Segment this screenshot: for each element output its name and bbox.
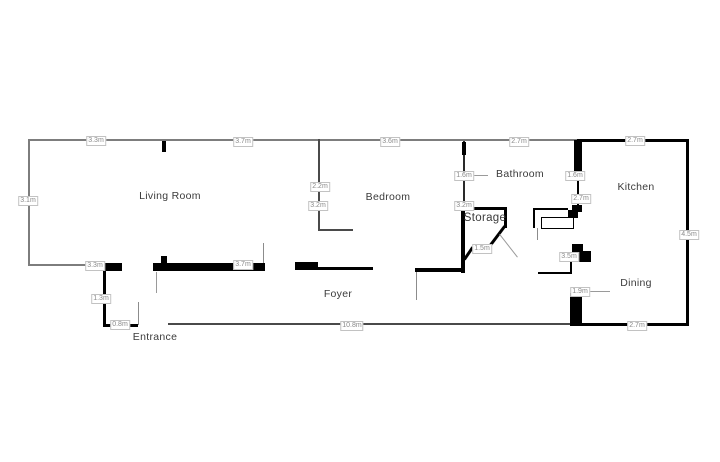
dim-entrance-door: 0.8m xyxy=(110,320,130,330)
dim-left-wall: 3.1m xyxy=(18,196,38,206)
dim-storage-top: 3.2m xyxy=(454,201,474,211)
dim-living-south: 3.7m xyxy=(233,260,253,270)
room-label-living-room: Living Room xyxy=(139,190,201,202)
dim-right-wall: 4.5m xyxy=(679,230,699,240)
room-label-foyer: Foyer xyxy=(324,288,352,300)
room-label-bathroom: Bathroom xyxy=(496,168,544,180)
wall-dining-divider xyxy=(570,293,582,326)
dim-top-living: 3.7m xyxy=(233,137,253,147)
dim-bathroom-west: 1.6m xyxy=(454,171,474,181)
kitchen-counter-top-line xyxy=(533,208,568,210)
wall-bottom-left-ledge xyxy=(28,264,86,266)
dim-bottom-dining: 2.7m xyxy=(627,321,647,331)
dining-appliance-block-b xyxy=(579,251,591,262)
room-label-dining: Dining xyxy=(620,277,652,289)
bedroom-door-line xyxy=(416,272,417,300)
wall-top-gray xyxy=(28,139,577,141)
storage-door-swing-line xyxy=(499,234,518,257)
wall-bathroom-kitchen-thick xyxy=(574,140,582,172)
dining-counter-horizontal xyxy=(538,272,571,274)
dim-dining-counter: 3.5m xyxy=(559,252,579,262)
dim-bottom-left-ledge: 3.3m xyxy=(85,261,105,271)
wall-bedroom-bathroom-tick xyxy=(462,142,466,155)
dining-dim-leader xyxy=(588,291,610,292)
dim-dining-divider: 1.9m xyxy=(570,287,590,297)
wall-foyer-right xyxy=(415,268,463,272)
kitchen-counter-sink xyxy=(541,217,574,229)
kitchen-counter-stub-line xyxy=(537,228,538,240)
wall-bottom-long xyxy=(168,323,570,325)
room-label-kitchen: Kitchen xyxy=(617,181,654,193)
top-wall-tick xyxy=(162,141,166,152)
dim-top-left: 3.3m xyxy=(86,136,106,146)
room-label-bedroom: Bedroom xyxy=(366,191,411,203)
dim-bedroom-wall-lower: 3.2m xyxy=(308,201,328,211)
dim-kitchen-west-lower: 2.7m xyxy=(571,194,591,204)
wall-livingroom-bedroom-foot xyxy=(318,229,353,231)
living-door-line xyxy=(263,243,264,263)
dim-bottom-long: 10.8m xyxy=(340,321,363,331)
room-label-entrance: Entrance xyxy=(133,331,177,343)
dim-entrance-left: 1.3m xyxy=(91,294,111,304)
wall-bedroom-south-thick xyxy=(295,262,318,270)
dim-top-bedroom: 3.6m xyxy=(380,137,400,147)
dim-bedroom-wall-upper: 2.2m xyxy=(310,182,330,192)
dim-storage-bottom: 1.5m xyxy=(472,244,492,254)
wall-bedroom-south-thin xyxy=(318,267,373,270)
wall-living-south-notch xyxy=(161,256,167,264)
living-south-stub-line xyxy=(156,272,157,293)
dim-kitchen-west-upper: 1.6m xyxy=(565,171,585,181)
room-label-storage: Storage xyxy=(464,212,506,224)
dim-top-kitchen: 2.7m xyxy=(625,136,645,146)
dim-top-bathroom: 2.7m xyxy=(509,137,529,147)
floor-plan: Living Room Bedroom Bathroom Kitchen Sto… xyxy=(0,0,720,462)
entrance-door-line xyxy=(138,302,139,325)
kitchen-counter-left-line xyxy=(533,208,535,228)
